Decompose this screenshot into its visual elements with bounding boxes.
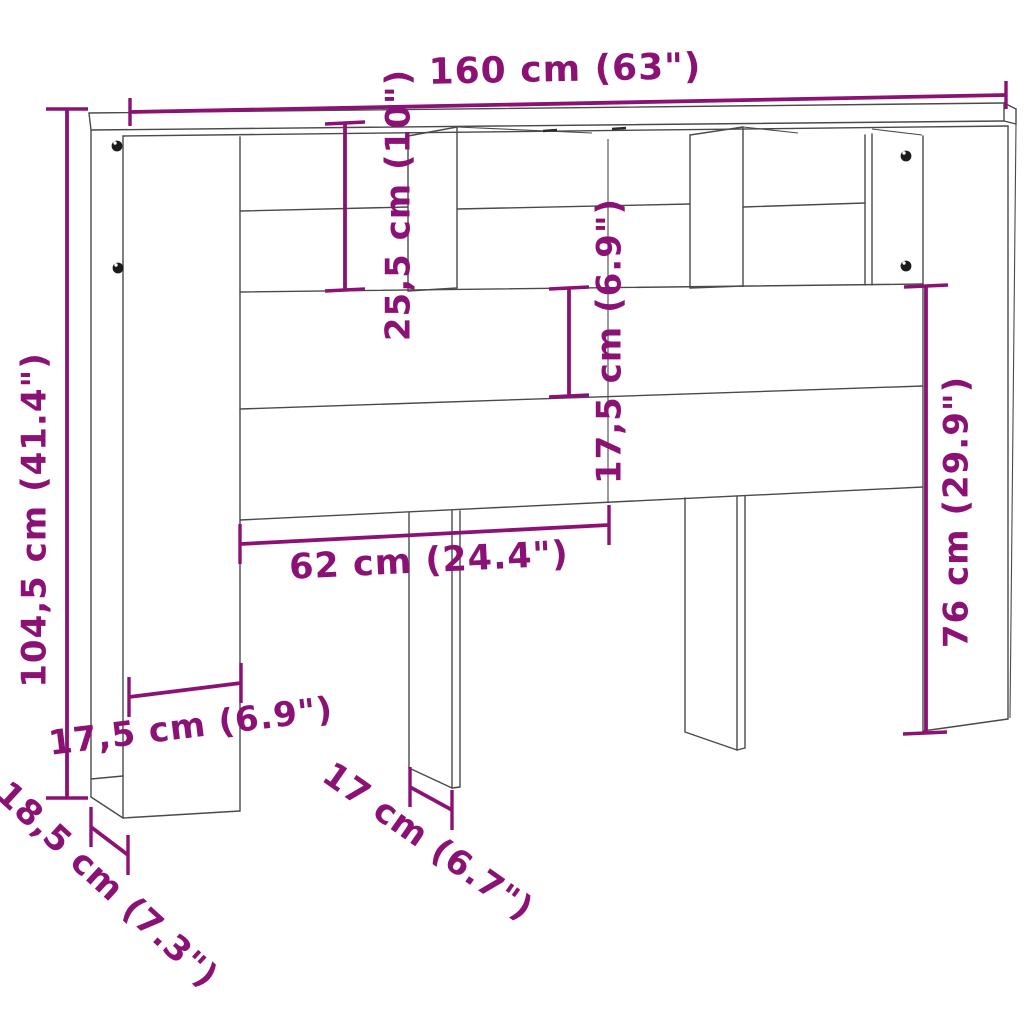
dim-depth-label: 18,5 cm (7.3") xyxy=(0,773,226,996)
cam-screw-icon xyxy=(901,261,912,272)
dim-rail-height-label: 17,5 cm (6.9") xyxy=(590,198,630,484)
dim-pillar-width-label: 17,5 cm (6.9") xyxy=(46,689,335,764)
dim-overall-height: 104,5 cm (41.4") xyxy=(15,109,89,798)
dim-inner-span-label: 62 cm (24.4") xyxy=(288,534,569,588)
dim-leg-width: 17 cm (6.7") xyxy=(315,754,541,929)
joint-mark xyxy=(612,128,626,129)
dim-lower-section-height: 76 cm (29.9") xyxy=(903,285,977,734)
diagram-canvas: 160 cm (63") 104,5 cm (41.4") 25,5 cm (1… xyxy=(0,0,1024,1024)
cam-screw-icon xyxy=(901,151,912,162)
shelf-section-lines xyxy=(240,127,923,292)
dim-overall-width: 160 cm (63") xyxy=(130,46,1006,126)
dimension-diagram: 160 cm (63") 104,5 cm (41.4") 25,5 cm (1… xyxy=(0,0,1024,1024)
dim-rail-height: 17,5 cm (6.9") xyxy=(549,198,630,484)
dim-overall-width-label: 160 cm (63") xyxy=(428,46,702,93)
joint-mark xyxy=(543,130,557,131)
headboard-panel-lines xyxy=(240,139,923,520)
dim-pillar-width: 17,5 cm (6.9") xyxy=(46,663,335,764)
dim-top-compartment-height-label: 25,5 cm (10") xyxy=(379,69,419,341)
dim-overall-height-label: 104,5 cm (41.4") xyxy=(15,352,55,687)
dim-leg-width-label: 17 cm (6.7") xyxy=(315,754,541,929)
cam-screw-icon xyxy=(113,263,124,274)
right-leg-lines xyxy=(685,496,745,750)
cam-screw-icon xyxy=(112,141,123,152)
dim-lower-section-height-label: 76 cm (29.9") xyxy=(937,376,977,648)
dim-depth: 18,5 cm (7.3") xyxy=(0,773,226,996)
